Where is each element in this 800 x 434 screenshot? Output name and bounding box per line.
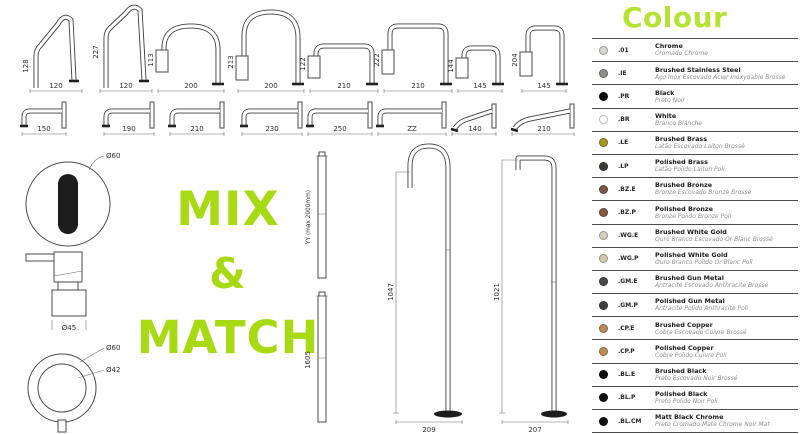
- finish-swatch: [599, 69, 608, 78]
- dimension-label: 128: [22, 59, 30, 72]
- diameter-label: Ø60: [106, 344, 120, 352]
- finish-row: .BZ.P Polished Bronze Bronze Polido Bron…: [592, 201, 798, 224]
- dimension-label: 1021: [493, 283, 501, 301]
- ampersand: &: [136, 253, 320, 295]
- finish-code: .BR: [618, 116, 655, 123]
- colour-title: Colour: [622, 1, 798, 34]
- dimension-label: 213: [227, 55, 235, 68]
- spout-drawing-arch-low: 113 200: [148, 0, 232, 94]
- dimension-label: 200: [184, 82, 197, 90]
- finish-subtitle: Latão Escovado Laiton Brossé: [655, 143, 798, 151]
- finish-code: .BL.CM: [618, 418, 655, 425]
- diameter-label: Ø45: [62, 324, 76, 332]
- finish-subtitle: Bronze Polido Bronze Poli: [655, 213, 798, 221]
- freestanding-spout-square: 1021 207: [492, 132, 584, 434]
- finish-code: .PR: [618, 93, 655, 100]
- spout-drawing-compact-high: 204 145: [512, 0, 574, 94]
- finish-subtitle: Ouro Branco Escovado Or Blanc Brossé: [655, 236, 798, 244]
- finish-list: .01 Chrome Cromado Chrome .IE Brushed St…: [592, 38, 798, 433]
- finish-name: Black: [655, 89, 798, 97]
- finish-row: .BR White Branco Blanche: [592, 109, 798, 132]
- finish-names: Polished Black Preto Polido Noir Poli: [655, 390, 798, 406]
- dimension-label: 113: [147, 53, 155, 66]
- finish-row: .CP.E Brushed Copper Cobre Escovado Cuiv…: [592, 317, 798, 340]
- finish-code: .CP.E: [618, 325, 655, 332]
- finish-row: .WG.P Polished White Gold Ouro Branco Po…: [592, 248, 798, 271]
- finish-name: Brushed Black: [655, 367, 798, 375]
- finish-row: .GM.P Polished Gun Metal Antracite Polid…: [592, 294, 798, 317]
- finish-code: .BZ.P: [618, 209, 655, 216]
- dimension-label: 122: [299, 57, 307, 70]
- finish-names: Polished Copper Cobre Polido Cuivre Poli: [655, 344, 798, 360]
- spout-drawing-angled-1: 128 120: [22, 0, 88, 94]
- handle-side-view: Ø45: [22, 250, 106, 334]
- dimension-label: 190: [122, 125, 135, 133]
- finish-name: Brushed Stainless Steel: [655, 66, 798, 74]
- finish-names: Brushed Gun Metal Antracite Escovado Ant…: [655, 274, 798, 290]
- finish-row: .BZ.E Brushed Bronze Bronze Escovado Bro…: [592, 178, 798, 201]
- finish-swatch: [599, 301, 608, 310]
- riser-column-custom: YY (max 2000mm): [302, 146, 338, 284]
- spout-drawing-compact-low: 144 145: [448, 0, 510, 94]
- finish-row: .BL.E Brushed Black Preto Escovado Noir …: [592, 364, 798, 387]
- finish-swatch: [599, 347, 608, 356]
- finish-names: Polished Brass Latão Polido Laiton Poli: [655, 158, 798, 174]
- dimension-label: 145: [473, 82, 486, 90]
- dimension-label: 210: [411, 82, 424, 90]
- finish-row: .LP Polished Brass Latão Polido Laiton P…: [592, 155, 798, 178]
- finish-swatch: [599, 370, 608, 379]
- mix-line: MIX: [136, 186, 320, 233]
- finish-subtitle: Antracite Polido Anthracite Poli: [655, 305, 798, 313]
- wall-spout-250: 250: [300, 98, 376, 140]
- finish-swatch: [599, 92, 608, 101]
- dimension-label: 222: [373, 53, 381, 66]
- finish-name: Polished Black: [655, 390, 798, 398]
- wall-spout-230: 230: [234, 98, 306, 140]
- finish-name: Brushed White Gold: [655, 228, 798, 236]
- finish-names: Brushed White Gold Ouro Branco Escovado …: [655, 228, 798, 244]
- finish-swatch: [599, 393, 608, 402]
- finish-code: .WG.P: [618, 255, 655, 262]
- dimension-label: 120: [49, 82, 62, 90]
- finish-code: .01: [618, 47, 655, 54]
- finish-subtitle: Cromado Chrome: [655, 50, 798, 58]
- finish-subtitle: Preto Escovado Noir Brossé: [655, 375, 798, 383]
- finish-subtitle: Aço Inox Escovado Acier Inoxydable Bross…: [655, 74, 798, 82]
- finish-names: Matt Black Chrome Preto Cromado Mate Chr…: [655, 413, 798, 429]
- finish-subtitle: Preto Cromado Mate Chrome Noir Mat: [655, 421, 798, 429]
- finish-name: Chrome: [655, 42, 798, 50]
- finish-names: Polished Gun Metal Antracite Polido Anth…: [655, 297, 798, 313]
- finish-code: .GM.P: [618, 302, 655, 309]
- dimension-label: 200: [264, 82, 277, 90]
- dimension-label: 144: [447, 59, 455, 73]
- finish-code: .IE: [618, 70, 655, 77]
- finish-code: .BL.P: [618, 394, 655, 401]
- finish-swatch: [599, 231, 608, 240]
- finish-subtitle: Cobre Escovado Cuivre Brossé: [655, 329, 798, 337]
- finish-swatch: [599, 254, 608, 263]
- dimension-label: 230: [265, 125, 278, 133]
- finish-subtitle: Ouro Branco Polido Or Blanc Poli: [655, 259, 798, 267]
- finish-names: Polished White Gold Ouro Branco Polido O…: [655, 251, 798, 267]
- finish-row: .GM.E Brushed Gun Metal Antracite Escova…: [592, 271, 798, 294]
- finish-row: .IE Brushed Stainless Steel Aço Inox Esc…: [592, 62, 798, 85]
- finish-row: .BL.CM Matt Black Chrome Preto Cromado M…: [592, 410, 798, 433]
- finish-name: White: [655, 112, 798, 120]
- finish-row: .PR Black Preto Noir: [592, 85, 798, 108]
- riser-label: 1605: [304, 351, 312, 369]
- finish-name: Polished Bronze: [655, 205, 798, 213]
- dimension-label: 150: [37, 125, 50, 133]
- finish-subtitle: Antracite Escovado Anthracite Brossé: [655, 282, 798, 290]
- finish-swatch: [599, 138, 608, 147]
- dimension-label: 204: [511, 53, 519, 67]
- finish-swatch: [599, 46, 608, 55]
- sensor-front-view: Ø60: [18, 138, 134, 252]
- diameter-label: Ø42: [106, 366, 120, 374]
- finish-name: Polished Gun Metal: [655, 297, 798, 305]
- dimension-label: 120: [119, 82, 132, 90]
- finish-subtitle: Preto Polido Noir Poli: [655, 398, 798, 406]
- finish-subtitle: Branco Blanche: [655, 120, 798, 128]
- finish-names: Brushed Bronze Bronze Escovado Bronze Br…: [655, 181, 798, 197]
- finish-name: Brushed Copper: [655, 321, 798, 329]
- dimension-label: 210: [337, 82, 350, 90]
- dimension-label: 145: [537, 82, 550, 90]
- finish-swatch: [599, 115, 608, 124]
- finish-row: .WG.E Brushed White Gold Ouro Branco Esc…: [592, 225, 798, 248]
- dimension-label: 207: [528, 426, 541, 434]
- finish-name: Brushed Brass: [655, 135, 798, 143]
- finish-subtitle: Bronze Escovado Bronze Brossé: [655, 189, 798, 197]
- finish-code: .BL.E: [618, 371, 655, 378]
- finish-name: Matt Black Chrome: [655, 413, 798, 421]
- finish-name: Polished Brass: [655, 158, 798, 166]
- wall-spout-210: 210: [162, 98, 228, 140]
- finish-swatch: [599, 277, 608, 286]
- catalog-page: 128 120 227 120 113 200 213 200 122 210: [0, 0, 800, 434]
- finish-row: .LE Brushed Brass Latão Escovado Laiton …: [592, 132, 798, 155]
- finish-swatch: [599, 324, 608, 333]
- finish-swatch: [599, 162, 608, 171]
- finish-row: .BL.P Polished Black Preto Polido Noir P…: [592, 387, 798, 410]
- finish-subtitle: Cobre Polido Cuivre Poli: [655, 352, 798, 360]
- dimension-label: 210: [190, 125, 203, 133]
- riser-label: YY (max 2000mm): [306, 190, 312, 245]
- freestanding-spout-curved: 1047 209: [388, 132, 480, 434]
- finish-swatch: [599, 417, 608, 426]
- finish-code: .BZ.E: [618, 186, 655, 193]
- riser-column-1605: 1605: [302, 288, 338, 430]
- diameter-label: Ø60: [106, 152, 120, 160]
- wall-spout-150: 150: [14, 98, 70, 140]
- finish-code: .WG.E: [618, 232, 655, 239]
- finish-swatch: [599, 208, 608, 217]
- finish-name: Brushed Bronze: [655, 181, 798, 189]
- finish-name: Brushed Gun Metal: [655, 274, 798, 282]
- finish-swatch: [599, 185, 608, 194]
- colour-panel: Colour .01 Chrome Cromado Chrome .IE Bru…: [592, 0, 798, 433]
- finish-names: Polished Bronze Bronze Polido Bronze Pol…: [655, 205, 798, 221]
- finish-code: .LP: [618, 163, 655, 170]
- dimension-label: 227: [92, 45, 100, 58]
- finish-subtitle: Preto Noir: [655, 97, 798, 105]
- finish-name: Polished Copper: [655, 344, 798, 352]
- ring-handle-top-view: Ø60 Ø42: [20, 332, 150, 434]
- finish-code: .LE: [618, 139, 655, 146]
- finish-row: .01 Chrome Cromado Chrome: [592, 39, 798, 62]
- dimension-label: 250: [333, 125, 346, 133]
- finish-names: Brushed Black Preto Escovado Noir Brossé: [655, 367, 798, 383]
- dimension-label: 1047: [387, 283, 395, 301]
- finish-names: Brushed Stainless Steel Aço Inox Escovad…: [655, 66, 798, 82]
- match-line: MATCH: [136, 315, 320, 360]
- finish-names: Black Preto Noir: [655, 89, 798, 105]
- finish-name: Polished White Gold: [655, 251, 798, 259]
- finish-code: .GM.E: [618, 278, 655, 285]
- finish-names: Brushed Copper Cobre Escovado Cuivre Bro…: [655, 321, 798, 337]
- finish-code: .CP.P: [618, 348, 655, 355]
- finish-subtitle: Latão Polido Laiton Poli: [655, 166, 798, 174]
- mix-and-match-headline: MIX & MATCH: [136, 186, 320, 360]
- finish-names: White Branco Blanche: [655, 112, 798, 128]
- dimension-label: 209: [422, 426, 435, 434]
- wall-spout-190: 190: [96, 98, 158, 140]
- finish-row: .CP.P Polished Copper Cobre Polido Cuivr…: [592, 340, 798, 363]
- finish-names: Brushed Brass Latão Escovado Laiton Bros…: [655, 135, 798, 151]
- finish-names: Chrome Cromado Chrome: [655, 42, 798, 58]
